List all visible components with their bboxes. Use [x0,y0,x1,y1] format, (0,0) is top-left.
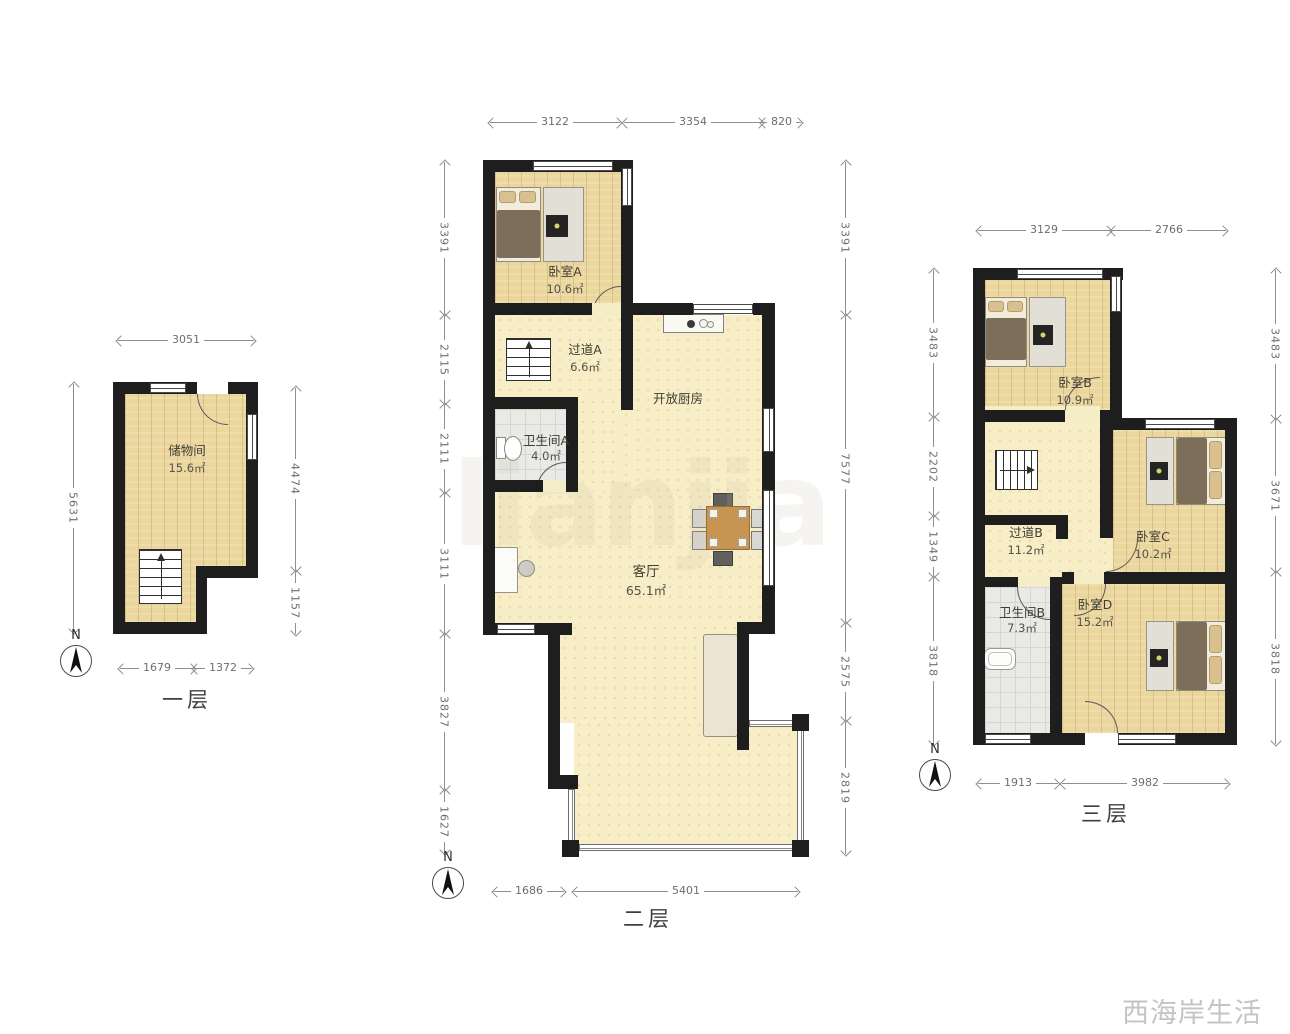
room-label-bedroom-b: 卧室B [1030,376,1120,390]
window [1111,276,1121,312]
dim-floor2-left-0: 3391 [437,162,451,314]
dim-floor1-right-0: 4474 [288,388,302,570]
north-compass: N [429,850,467,900]
window [1017,269,1103,279]
dim-floor1-bottom-1: 1372 [194,661,252,675]
site-watermark: 西海岸生活 [1122,991,1290,1030]
window [985,734,1031,744]
balcony-post [562,840,579,857]
floor2-title: 二层 [600,903,696,933]
wall [633,303,693,315]
window [763,490,774,586]
balcony [574,720,798,846]
dim-floor3-right-1: 3671 [1268,420,1282,571]
door-opening [1085,733,1118,745]
dim-floor2-left-2: 2111 [437,405,451,492]
dim-floor3-bottom-0: 1913 [978,776,1058,790]
stairs-arrow-icon [161,555,162,599]
compass-icon [59,644,93,678]
balcony-rail [749,720,797,727]
wall [113,382,125,634]
sink-icon [707,321,714,328]
tv-cabinet [1033,325,1053,345]
wall [973,577,1018,587]
wall [1104,572,1237,584]
bed-pillow [499,191,516,203]
room-label-bedroom-c: 卧室C [1108,530,1198,544]
place-setting [709,538,718,547]
door-opening [1018,577,1050,587]
wall [1062,572,1074,584]
wall [483,397,578,409]
bathtub [984,648,1016,670]
wall [1100,422,1113,538]
room-area-living: 65.1㎡ [600,584,692,598]
dim-floor3-bottom-1: 3982 [1062,776,1228,790]
balcony-rail [579,844,794,851]
north-label: N [930,742,940,757]
dim-floor3-left-3: 3818 [926,578,940,744]
wall [737,622,749,750]
north-compass: N [916,742,954,792]
window [622,168,632,206]
window [150,383,186,393]
wall [983,515,1068,525]
room-area-hallway-a: 6.6㎡ [540,361,630,374]
bed-pillow [1209,441,1222,469]
stairs-arrow-icon [529,343,530,377]
place-setting [709,509,718,518]
window [1145,419,1215,429]
dim-floor3-right-0: 3483 [1268,270,1282,418]
room-area-bathroom-a: 4.0㎡ [500,450,592,463]
compass-icon [918,758,952,792]
bed-pillow [519,191,536,203]
room-label-hallway-a: 过道A [540,343,630,357]
bed-duvet [986,318,1026,360]
stairs [995,450,1038,490]
door-opening [197,382,228,394]
compass-icon [431,866,465,900]
room-area-bedroom-d: 15.2㎡ [1050,616,1140,629]
dim-floor2-right-0: 3391 [838,162,852,314]
room-label-kitchen: 开放厨房 [632,392,724,406]
stairs [139,549,182,604]
bed-duvet [1177,438,1207,504]
balcony-post [792,840,809,857]
dim-floor2-left-5: 1627 [437,791,451,853]
tv-cabinet [546,215,568,237]
window [763,408,774,452]
dim-floor2-left-4: 3827 [437,635,451,789]
place-setting [738,509,747,518]
room-area-bedroom-b: 10.9㎡ [1030,394,1120,407]
dim-floor1-right-1: 1157 [288,572,302,634]
dim-floor2-left-3: 3111 [437,494,451,633]
dim-floor2-right-2: 2575 [838,624,852,720]
dim-floor2-left-1: 2115 [437,316,451,403]
tv-cabinet [1150,649,1168,667]
dim-floor1-top-0: 3051 [118,333,254,347]
wall [495,303,592,315]
wall [113,622,207,634]
window [533,161,613,171]
balcony-post [792,714,809,731]
dim-floor2-bottom-1: 5401 [574,884,798,898]
bed-pillow [1209,625,1222,653]
bed-pillow [1209,656,1222,684]
wall [548,635,560,783]
place-setting [738,538,747,547]
dim-floor3-left-1: 2202 [926,418,940,515]
wall [483,480,543,492]
floor1-title: 一层 [132,684,242,714]
room-label-living: 客厅 [600,565,692,581]
room-label-storage: 储物间 [142,444,232,458]
room-label-bedroom-d: 卧室D [1050,598,1140,612]
room-area-hallway-b: 11.2㎡ [981,544,1071,557]
north-label: N [71,628,81,643]
dim-floor2-right-1: 7577 [838,316,852,622]
room-label-hallway-b: 过道B [981,526,1071,540]
sofa [703,634,738,737]
balcony-rail [797,727,804,843]
room-area-bedroom-c: 10.2㎡ [1108,548,1198,561]
dim-floor3-left-0: 3483 [926,270,940,416]
dim-floor3-right-2: 3818 [1268,573,1282,744]
door-opening [1065,410,1100,422]
bed-pillow [1209,471,1222,499]
window [1118,734,1176,744]
bed-duvet [1177,622,1207,690]
wall [246,382,258,578]
room-area-bedroom-a: 10.6㎡ [520,283,610,296]
bed-pillow [1007,301,1023,312]
dim-floor2-top-1: 3354 [624,115,762,129]
door-opening [543,480,566,492]
dim-floor3-top-1: 2766 [1112,223,1226,237]
wall [985,410,1065,422]
dim-floor2-bottom-0: 1686 [494,884,564,898]
floor3-title: 三层 [1058,798,1154,828]
dim-floor3-top-0: 3129 [978,223,1110,237]
dim-floor2-top-2: 820 [762,115,800,129]
window [693,304,753,314]
wall [548,775,578,789]
bed-duvet [497,210,540,258]
dim-floor2-right-3: 2819 [838,722,852,854]
dim-floor3-left-2: 1349 [926,517,940,576]
room-label-bedroom-a: 卧室A [520,265,610,279]
stove-burner-icon [687,320,695,328]
dim-floor1-left-0: 5631 [66,384,80,632]
north-compass: N [57,628,95,678]
window [247,414,257,460]
north-label: N [443,850,453,865]
door-opening [1074,572,1104,584]
door-opening [592,303,621,315]
wall [973,268,985,745]
room-area-storage: 15.6㎡ [142,462,232,475]
stairs-arrow-icon [1000,470,1034,471]
floorplan-canvas: lianjia 储物间 15.6㎡ 3051 5631 4474 1157 16… [0,0,1290,1034]
dim-floor1-bottom-0: 1679 [120,661,194,675]
bed-pillow [988,301,1004,312]
dim-floor2-top-0: 3122 [490,115,620,129]
room-label-bathroom-a: 卫生间A [500,434,592,448]
window [497,624,535,634]
desk [493,547,518,593]
tv-cabinet [1150,462,1168,480]
balcony-rail [568,789,575,846]
